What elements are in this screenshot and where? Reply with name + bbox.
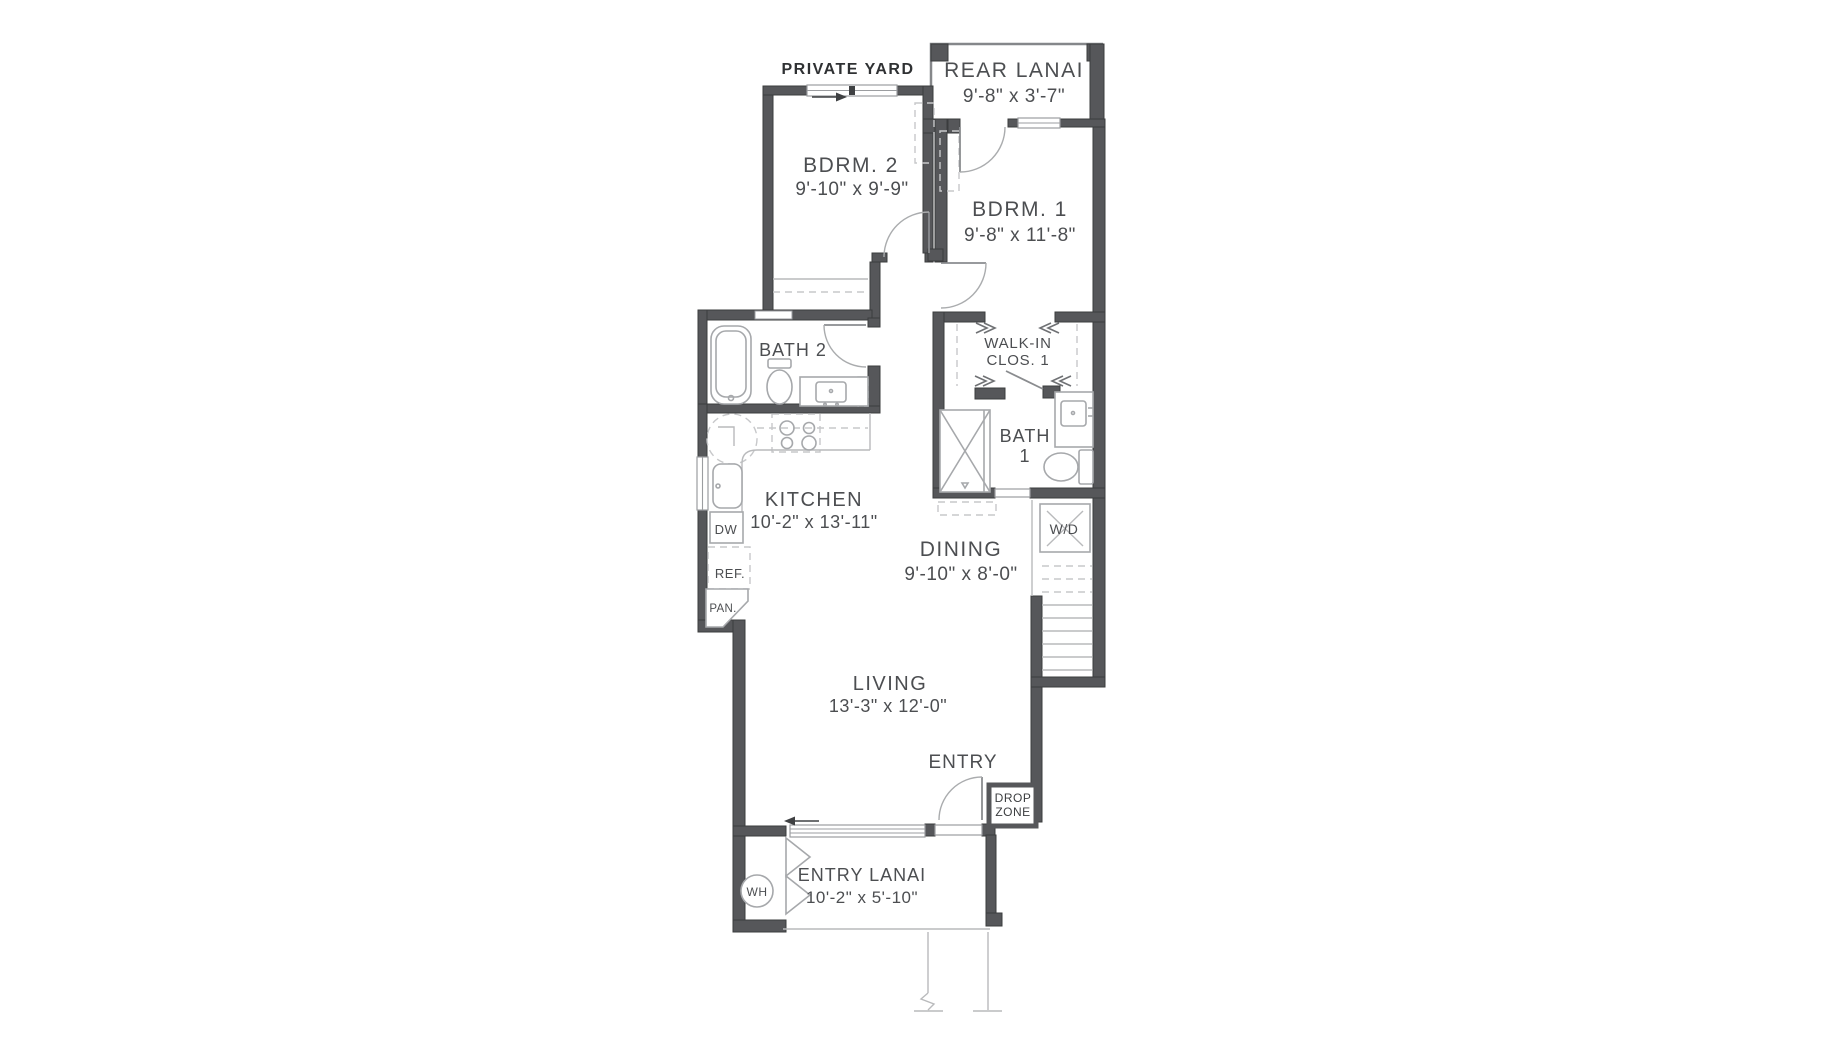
vanity-bath1 [1055,392,1093,447]
entry-threshold [935,825,982,835]
bath2-label: BATH 2 [759,340,827,360]
walls-layer [698,44,1105,932]
entry-lanai-dims: 10'-2" x 5'-10" [806,888,918,907]
bath2-door [824,325,866,367]
ref-label: REF. [715,566,745,581]
rear-lanai-label: REAR LANAI [944,59,1084,82]
walkin-label-2: CLOS. 1 [986,352,1049,369]
bdrm1-dims: 9'-8" x 11'-8" [964,225,1076,246]
private-yard-label: PRIVATE YARD [782,61,915,78]
bath1-label-2: 1 [1019,446,1030,466]
living-dims: 13'-3" x 12'-0" [829,696,947,716]
soffit-dashed [938,502,996,515]
bathtub [711,326,751,404]
corner-cabinet-dashed [707,414,757,464]
vanity-bath2 [800,377,868,406]
kitchen-dims: 10'-2" x 13'-11" [750,512,877,532]
pan-label: PAN. [709,603,736,615]
floor-plan-page: PRIVATE YARD REAR LANAI 9'-8" x 3'-7" BD… [0,0,1841,1041]
kitchen-label: KITCHEN [765,489,863,511]
dining-dims: 9'-10" x 8'-0" [904,564,1017,585]
drop-zone-label-2: ZONE [995,805,1030,819]
bdrm1-label: BDRM. 1 [972,198,1068,221]
drop-zone-label-1: DROP [995,791,1032,805]
bdrm2-dims: 9'-10" x 9'-9" [795,179,908,200]
dw-label: DW [715,522,738,537]
walkin-label-1: WALK-IN [984,335,1052,352]
bath1-threshold [995,489,1030,497]
entry-lanai-label: ENTRY LANAI [798,865,926,885]
walkin-door [1006,371,1043,389]
bdrm1-window [1018,118,1060,128]
rear-lanai-dims: 9'-8" x 3'-7" [963,86,1065,107]
entry-door [939,777,982,820]
bdrm2-door [884,212,929,257]
entry-label: ENTRY [928,752,997,773]
toilet-bath1 [1044,450,1093,484]
wh-label: WH [747,885,768,899]
living-label: LIVING [853,673,928,695]
shower [940,410,990,492]
bdrm1-lanai-door [960,127,1005,172]
bdrm1-hall-door [941,263,986,308]
bdrm2-label: BDRM. 2 [803,154,899,177]
floor-plan: PRIVATE YARD REAR LANAI 9'-8" x 3'-7" BD… [0,0,1841,1041]
toilet-bath2 [767,359,792,404]
bath1-label-1: BATH [1000,426,1051,446]
kitchen-sink [713,464,742,508]
bdrm2-window [807,85,897,96]
cooktop [780,421,816,450]
living-slider-door [790,825,925,837]
wd-label: W/D [1050,521,1079,537]
slider-egress-arrow [784,817,819,826]
entry-lanai-edge [783,929,1002,1011]
kitchen-window [697,457,708,510]
dining-label: DINING [920,538,1003,561]
